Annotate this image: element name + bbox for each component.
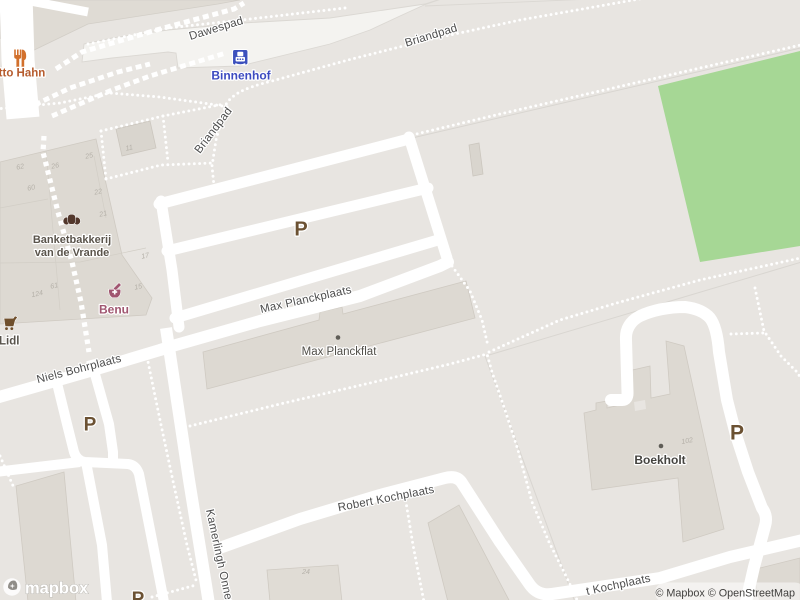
svg-text:Binnenhof: Binnenhof bbox=[211, 69, 271, 83]
svg-text:Otto Hahn: Otto Hahn bbox=[0, 68, 45, 80]
svg-text:P: P bbox=[132, 589, 145, 600]
svg-text:Lidl: Lidl bbox=[0, 336, 19, 348]
svg-text:Boekholt: Boekholt bbox=[634, 453, 685, 467]
svg-text:van de Vrande: van de Vrande bbox=[35, 247, 110, 259]
svg-text:© Mapbox © OpenStreetMap: © Mapbox © OpenStreetMap bbox=[655, 588, 795, 600]
svg-text:mapbox: mapbox bbox=[25, 580, 89, 598]
svg-text:P: P bbox=[294, 219, 307, 241]
svg-text:11: 11 bbox=[125, 144, 134, 152]
svg-text:24: 24 bbox=[301, 569, 310, 576]
svg-text:P: P bbox=[730, 422, 744, 445]
svg-text:P: P bbox=[84, 415, 97, 436]
svg-text:Banketbakkerij: Banketbakkerij bbox=[33, 234, 111, 246]
svg-text:Max Planckflat: Max Planckflat bbox=[302, 346, 378, 358]
svg-text:Benu: Benu bbox=[99, 303, 129, 317]
